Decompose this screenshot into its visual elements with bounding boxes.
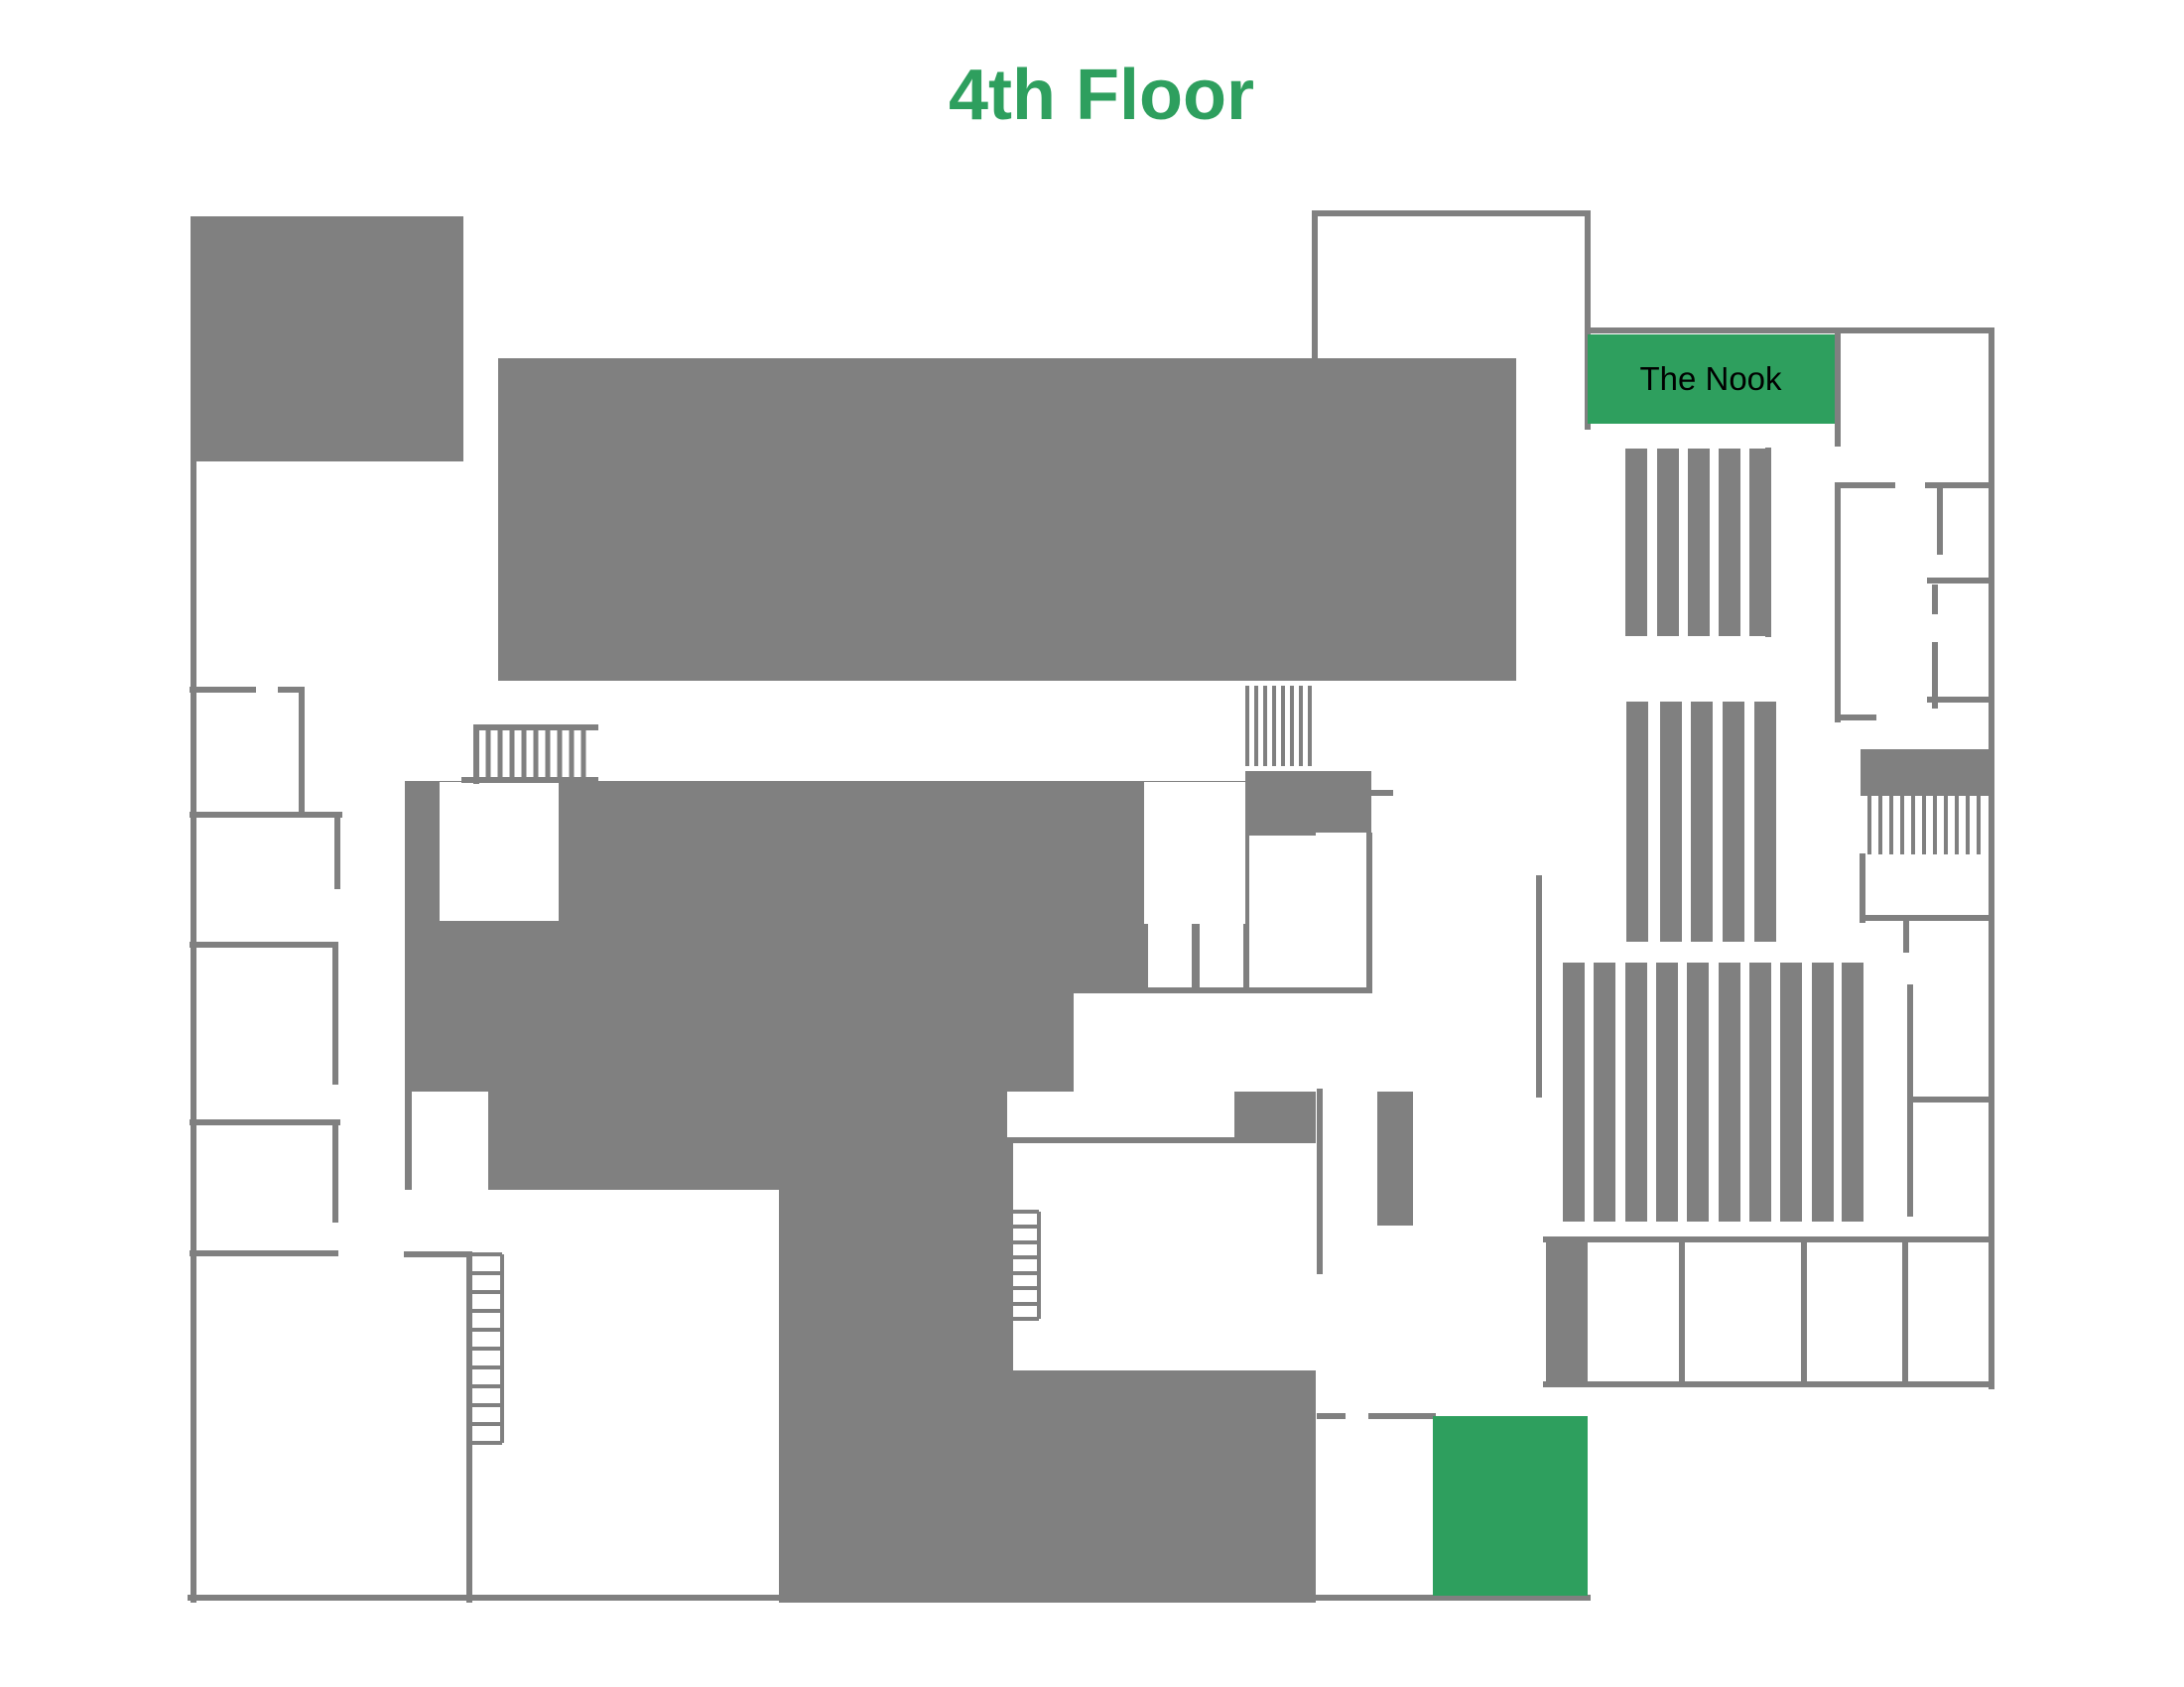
small-room-b: [1200, 924, 1243, 988]
floor-plan-svg: The Nook 4th Floor: [0, 0, 2184, 1687]
library-stacks-lower: [1563, 963, 1863, 1222]
room-by-stairs: [440, 782, 559, 921]
room-center-bottom: [1007, 1143, 1316, 1370]
block-row-left: [1546, 1242, 1588, 1382]
staircase-right: [1869, 796, 1979, 854]
corridor-center-top: [1144, 782, 1245, 924]
highlight-room[interactable]: [1433, 1416, 1588, 1596]
library-stacks-middle: [1626, 702, 1776, 942]
floor-map-page: The Nook 4th Floor: [0, 0, 2184, 1687]
block-top-left: [191, 216, 463, 461]
small-room-a: [1148, 924, 1192, 988]
page-title: 4th Floor: [949, 56, 1254, 135]
notch-left: [412, 1092, 488, 1190]
block-center: [1245, 771, 1371, 833]
nook-room[interactable]: The Nook: [1588, 334, 1835, 424]
block-right-top: [1861, 749, 1989, 796]
room-center-right: [1249, 836, 1367, 990]
staircase-center: [1247, 686, 1310, 766]
block-mid-right: [1377, 1092, 1413, 1226]
library-stacks-upper: [1625, 449, 1771, 636]
nook-label: The Nook: [1639, 360, 1782, 397]
slab-top: [498, 358, 1516, 681]
corridor-under-rooms: [1074, 992, 1316, 1092]
staircase-left: [488, 729, 583, 779]
corridor-center: [1007, 1092, 1234, 1137]
